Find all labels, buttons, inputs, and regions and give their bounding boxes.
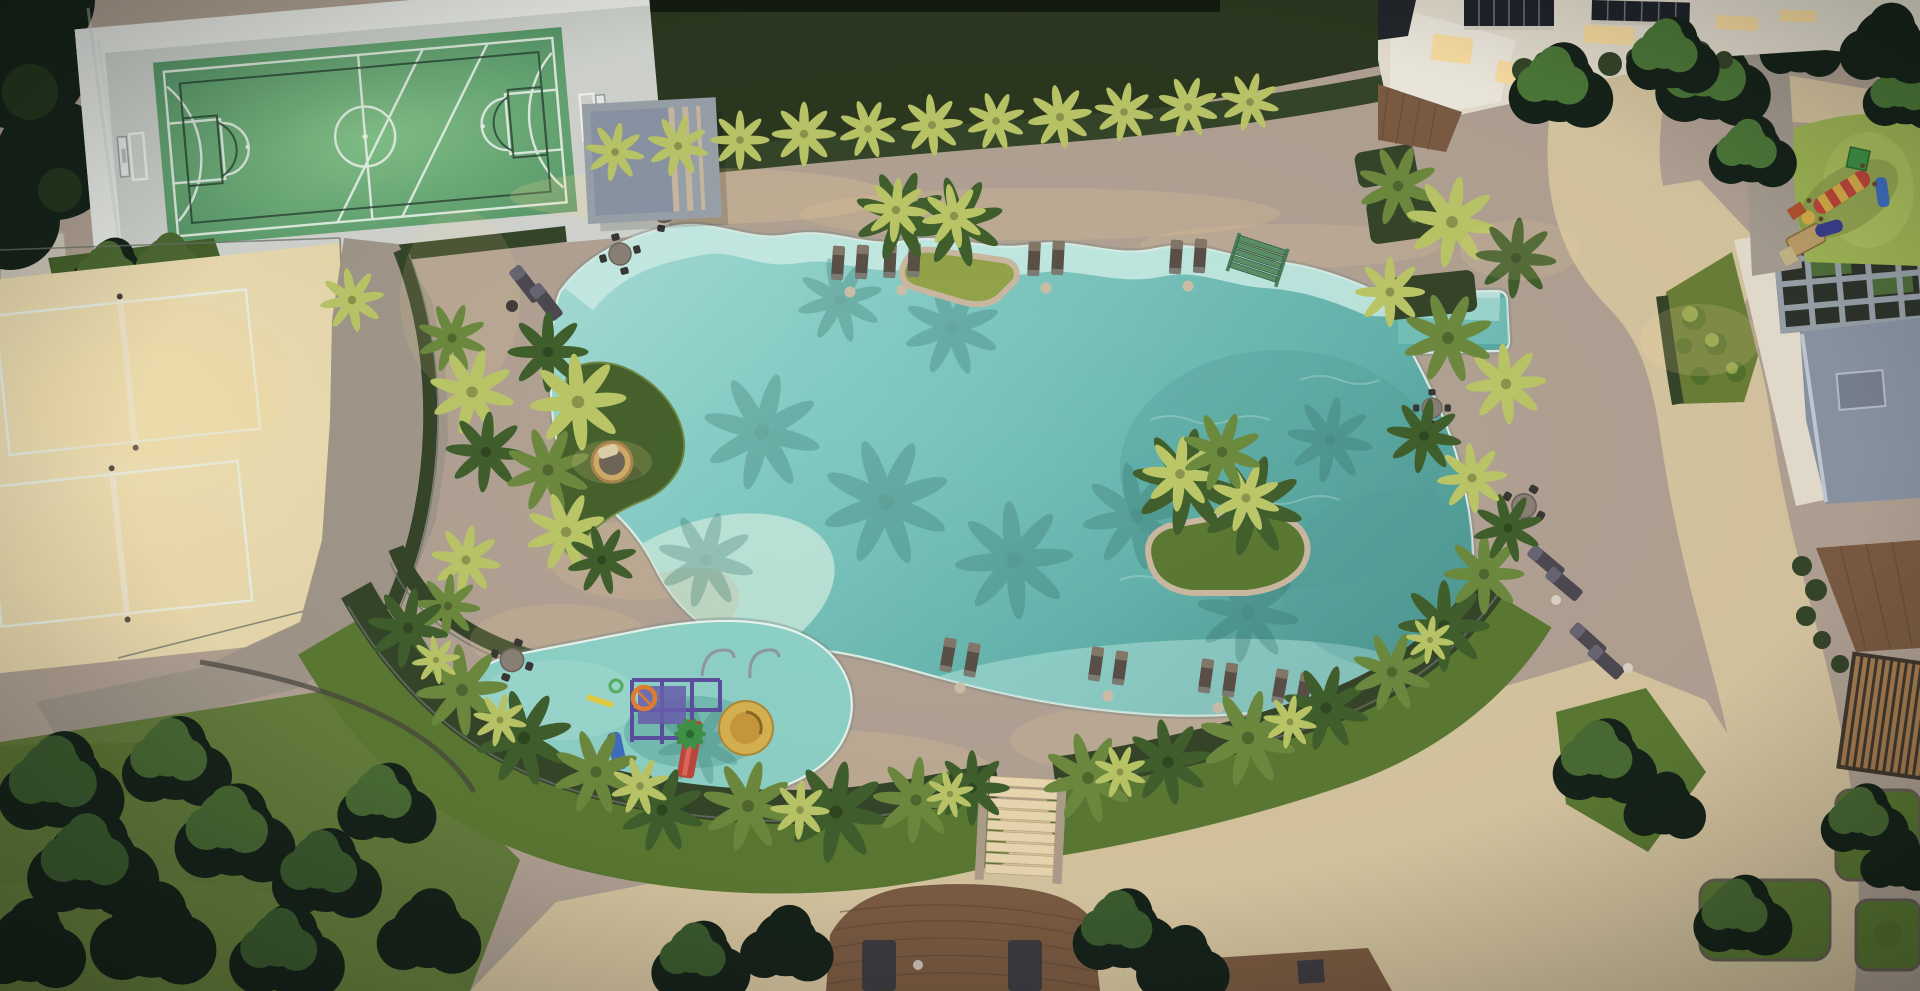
amenity-aerial-rendering: Aerial dusk rendering of a resort-style … <box>0 0 1920 991</box>
vignette <box>0 0 1920 991</box>
aerial-scene: Aerial dusk rendering of a resort-style … <box>0 0 1920 991</box>
